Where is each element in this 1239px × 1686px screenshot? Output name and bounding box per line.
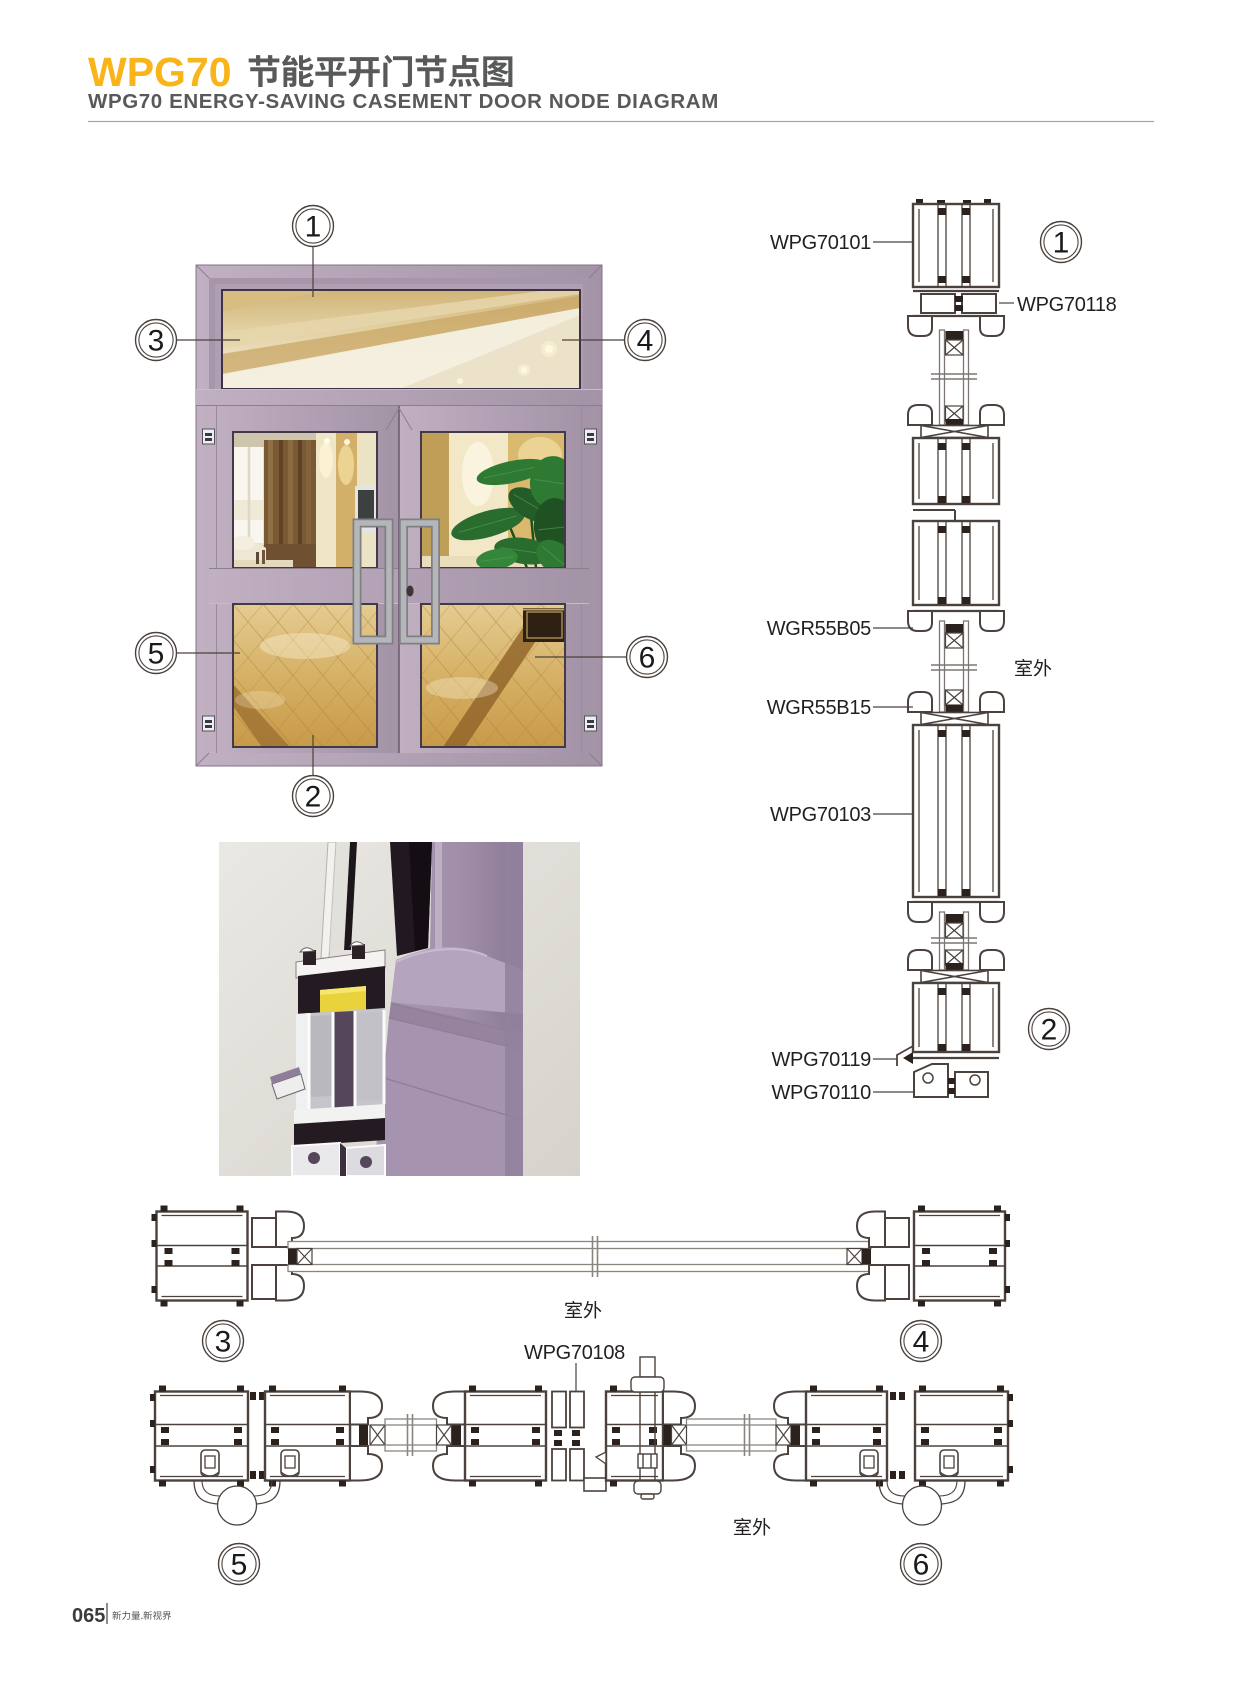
svg-text:3: 3: [148, 325, 165, 358]
svg-text:5: 5: [231, 1549, 248, 1582]
svg-text:2: 2: [305, 781, 322, 814]
svg-text:5: 5: [148, 638, 165, 671]
svg-text:4: 4: [913, 1326, 930, 1359]
svg-text:WPG70119: WPG70119: [771, 1049, 871, 1071]
svg-text:WPG70 ENERGY-SAVING CASEMENT D: WPG70 ENERGY-SAVING CASEMENT DOOR NODE D…: [88, 90, 719, 113]
svg-text:WPG70108: WPG70108: [524, 1342, 625, 1364]
svg-text:WGR55B15: WGR55B15: [767, 697, 871, 719]
svg-text:WPG70110: WPG70110: [771, 1082, 871, 1104]
svg-text:6: 6: [913, 1549, 930, 1582]
svg-text:WPG70101: WPG70101: [770, 232, 871, 254]
svg-text:WPG70103: WPG70103: [770, 804, 871, 826]
svg-text:WPG70118: WPG70118: [1017, 294, 1117, 316]
svg-text:6: 6: [639, 642, 656, 675]
svg-text:1: 1: [305, 211, 322, 244]
svg-text:065: 065: [72, 1605, 105, 1627]
svg-text:3: 3: [215, 1326, 232, 1359]
svg-text:1: 1: [1053, 227, 1070, 260]
svg-text:WGR55B05: WGR55B05: [767, 618, 871, 640]
svg-text:WPG70: WPG70: [88, 49, 232, 95]
svg-text:2: 2: [1041, 1014, 1058, 1047]
svg-text:4: 4: [637, 325, 654, 358]
